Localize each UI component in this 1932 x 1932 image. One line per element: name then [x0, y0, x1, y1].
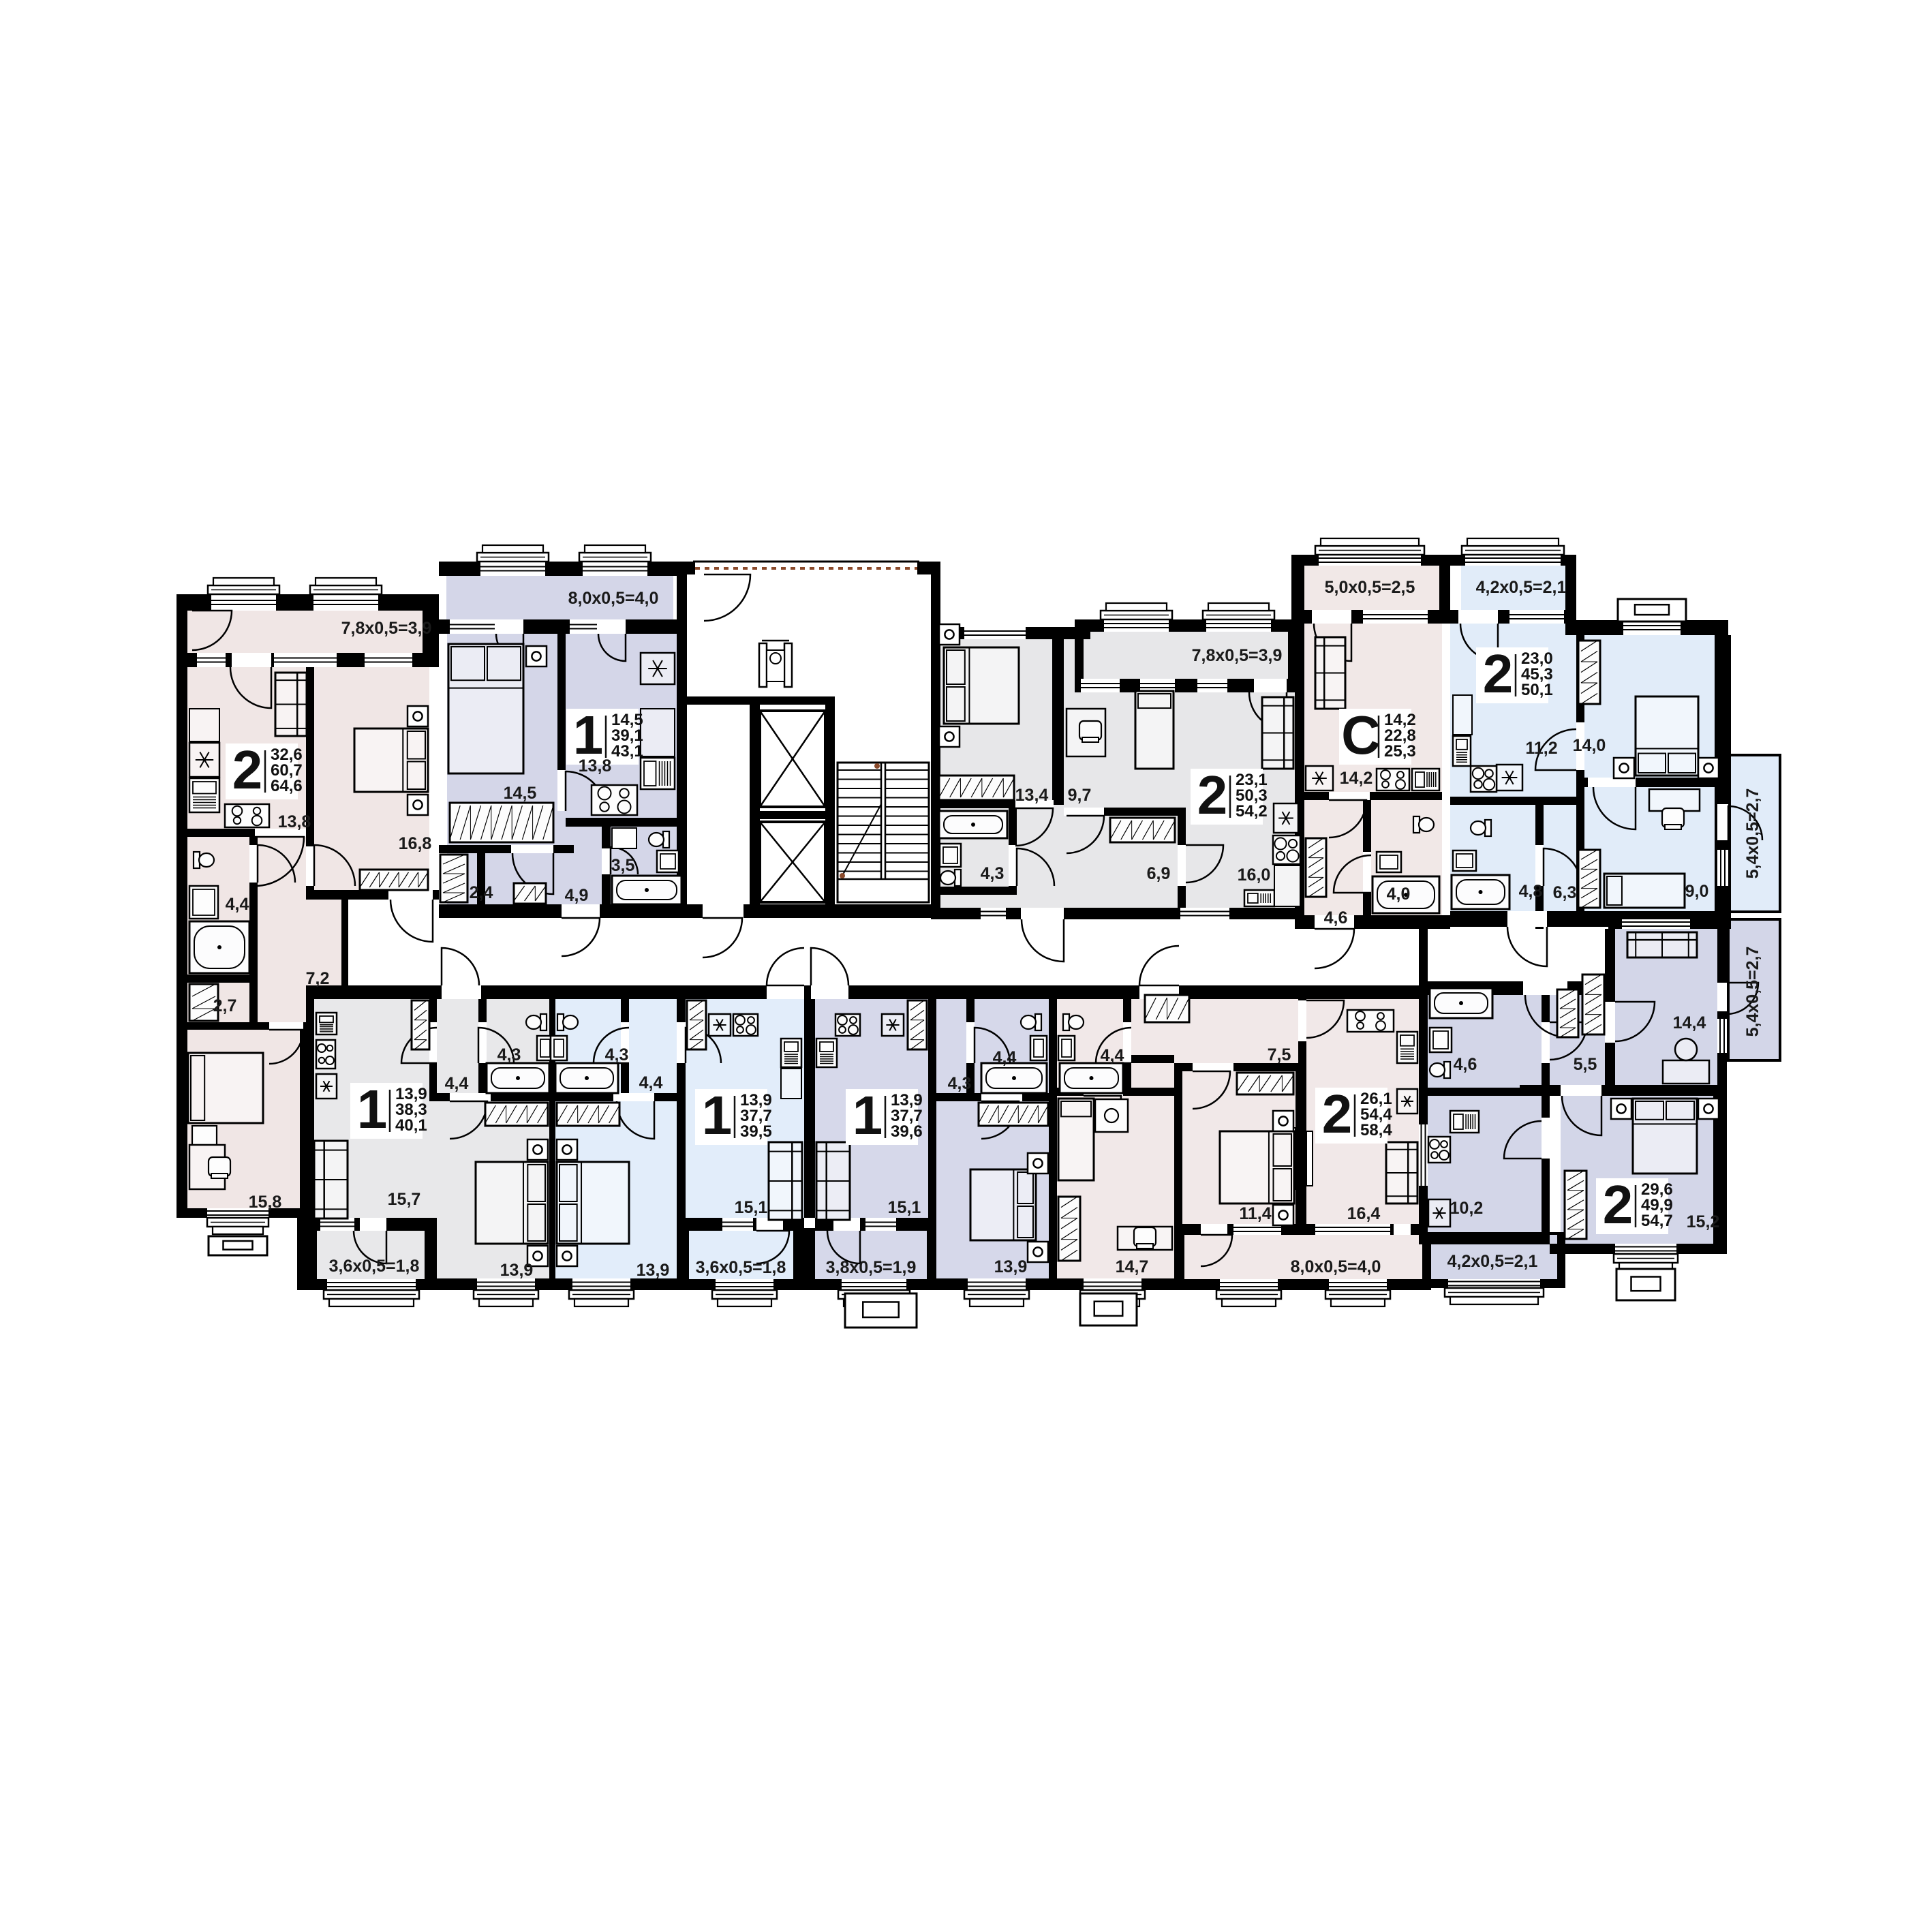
svg-text:9,7: 9,7 — [1068, 786, 1092, 805]
svg-text:15,2: 15,2 — [1687, 1212, 1720, 1231]
svg-text:11,2: 11,2 — [1525, 739, 1557, 758]
svg-text:14,2: 14,2 — [1340, 769, 1373, 788]
svg-text:4,3: 4,3 — [605, 1045, 629, 1064]
svg-text:7,5: 7,5 — [1268, 1045, 1291, 1064]
svg-text:8,0x0,5=4,0: 8,0x0,5=4,0 — [568, 589, 659, 608]
svg-text:6,9: 6,9 — [1147, 864, 1171, 883]
svg-text:58,4: 58,4 — [1360, 1121, 1392, 1139]
svg-text:C: C — [1341, 705, 1381, 765]
svg-text:15,7: 15,7 — [388, 1190, 421, 1209]
svg-text:7,8x0,5=3,9: 7,8x0,5=3,9 — [1192, 646, 1283, 665]
svg-text:14,4: 14,4 — [1673, 1013, 1706, 1032]
svg-text:25,3: 25,3 — [1384, 742, 1416, 761]
svg-text:4,3: 4,3 — [981, 864, 1005, 883]
svg-text:3,8x0,5=1,9: 3,8x0,5=1,9 — [826, 1258, 917, 1277]
svg-text:4,4: 4,4 — [226, 895, 249, 914]
svg-text:13,9: 13,9 — [500, 1261, 534, 1280]
svg-text:4,3: 4,3 — [497, 1045, 521, 1064]
svg-text:2,4: 2,4 — [470, 883, 493, 902]
svg-text:3,5: 3,5 — [611, 856, 635, 875]
svg-text:11,4: 11,4 — [1239, 1204, 1271, 1223]
svg-text:13,9: 13,9 — [994, 1257, 1028, 1276]
svg-text:4,0: 4,0 — [1387, 885, 1411, 904]
svg-text:5,4x0,5=2,7: 5,4x0,5=2,7 — [1743, 947, 1762, 1037]
svg-text:15,8: 15,8 — [249, 1193, 282, 1212]
svg-text:15,1: 15,1 — [888, 1198, 921, 1217]
svg-text:50,1: 50,1 — [1521, 681, 1553, 699]
svg-text:43,1: 43,1 — [611, 742, 643, 761]
svg-text:13,4: 13,4 — [1015, 786, 1049, 805]
svg-text:39,6: 39,6 — [891, 1122, 923, 1141]
svg-text:8,0x0,5=4,0: 8,0x0,5=4,0 — [1291, 1257, 1381, 1276]
svg-text:16,0: 16,0 — [1238, 865, 1271, 885]
svg-text:64,6: 64,6 — [271, 777, 303, 795]
svg-text:14,7: 14,7 — [1116, 1257, 1149, 1276]
svg-text:3,6x0,5=1,8: 3,6x0,5=1,8 — [696, 1258, 786, 1277]
svg-text:16,8: 16,8 — [399, 834, 432, 853]
svg-text:4,6: 4,6 — [1454, 1055, 1477, 1074]
svg-text:1: 1 — [702, 1085, 733, 1146]
svg-text:4,4: 4,4 — [1101, 1046, 1124, 1065]
svg-text:40,1: 40,1 — [395, 1116, 427, 1135]
svg-text:13,8: 13,8 — [579, 756, 612, 776]
svg-text:15,1: 15,1 — [735, 1198, 768, 1217]
svg-text:4,4: 4,4 — [445, 1074, 469, 1093]
svg-text:2: 2 — [1197, 765, 1228, 825]
svg-text:4,2x0,5=2,1: 4,2x0,5=2,1 — [1447, 1252, 1538, 1271]
svg-text:4,3: 4,3 — [948, 1074, 972, 1093]
svg-text:6,3: 6,3 — [1553, 883, 1577, 902]
svg-text:2: 2 — [1483, 643, 1514, 704]
svg-text:54,7: 54,7 — [1641, 1212, 1673, 1230]
svg-text:7,2: 7,2 — [306, 969, 330, 988]
svg-text:1: 1 — [853, 1085, 883, 1146]
svg-text:2: 2 — [1603, 1174, 1634, 1235]
svg-text:13,8: 13,8 — [278, 812, 311, 831]
svg-text:2: 2 — [1322, 1084, 1353, 1144]
svg-text:5,4x0,5=2,7: 5,4x0,5=2,7 — [1743, 788, 1762, 879]
svg-text:2,7: 2,7 — [213, 996, 237, 1015]
svg-text:5,0x0,5=2,5: 5,0x0,5=2,5 — [1325, 578, 1415, 597]
svg-text:54,2: 54,2 — [1236, 802, 1268, 821]
svg-text:1: 1 — [357, 1079, 388, 1139]
svg-text:4,2x0,5=2,1: 4,2x0,5=2,1 — [1476, 578, 1567, 597]
svg-text:4,9: 4,9 — [565, 886, 589, 905]
svg-text:39,5: 39,5 — [740, 1122, 772, 1141]
svg-text:4,4: 4,4 — [639, 1073, 663, 1092]
svg-text:4,4: 4,4 — [993, 1048, 1017, 1067]
svg-text:4,8: 4,8 — [1519, 882, 1543, 901]
svg-text:16,4: 16,4 — [1347, 1204, 1381, 1223]
svg-text:5,5: 5,5 — [1574, 1055, 1597, 1074]
svg-text:2: 2 — [232, 739, 263, 800]
svg-text:13,9: 13,9 — [637, 1261, 670, 1280]
svg-text:7,8x0,5=3,9: 7,8x0,5=3,9 — [341, 619, 432, 638]
svg-text:14,5: 14,5 — [504, 784, 537, 803]
svg-text:9,0: 9,0 — [1685, 882, 1709, 901]
svg-text:3,6x0,5=1,8: 3,6x0,5=1,8 — [329, 1257, 420, 1276]
svg-text:4,6: 4,6 — [1324, 908, 1348, 927]
svg-text:10,2: 10,2 — [1450, 1199, 1484, 1218]
svg-text:14,0: 14,0 — [1573, 736, 1606, 755]
